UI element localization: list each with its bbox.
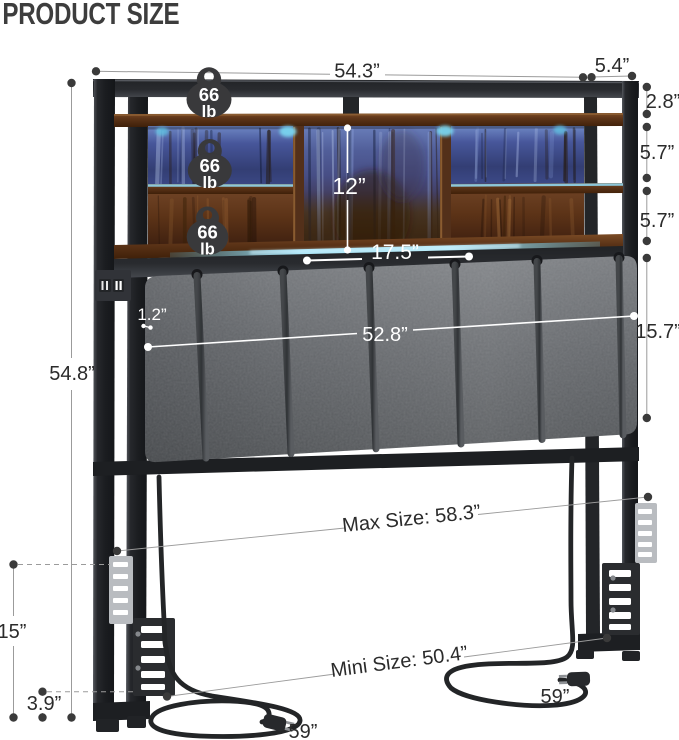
svg-text:59”: 59” xyxy=(289,721,318,740)
svg-text:17.5”: 17.5” xyxy=(371,241,419,264)
svg-text:2.8”: 2.8” xyxy=(646,91,679,113)
svg-text:66: 66 xyxy=(200,155,221,176)
svg-text:3.9”: 3.9” xyxy=(27,693,61,715)
svg-text:12”: 12” xyxy=(332,173,365,199)
svg-text:5.4”: 5.4” xyxy=(595,55,629,77)
svg-text:lb: lb xyxy=(202,174,217,192)
svg-text:5.7”: 5.7” xyxy=(640,142,674,164)
svg-text:15”: 15” xyxy=(0,621,26,643)
svg-text:15.7”: 15.7” xyxy=(635,321,679,343)
svg-text:1.2”: 1.2” xyxy=(137,305,167,324)
svg-text:54.3”: 54.3” xyxy=(334,61,380,83)
svg-text:lb: lb xyxy=(200,241,215,259)
svg-text:5.7”: 5.7” xyxy=(640,210,674,232)
svg-text:54.8”: 54.8” xyxy=(49,363,95,385)
svg-text:66: 66 xyxy=(199,84,220,105)
svg-text:lb: lb xyxy=(202,103,217,121)
svg-text:59”: 59” xyxy=(541,686,570,708)
svg-text:66: 66 xyxy=(197,222,218,243)
svg-text:PRODUCT SIZE: PRODUCT SIZE xyxy=(2,0,179,31)
svg-text:52.8”: 52.8” xyxy=(362,324,408,346)
